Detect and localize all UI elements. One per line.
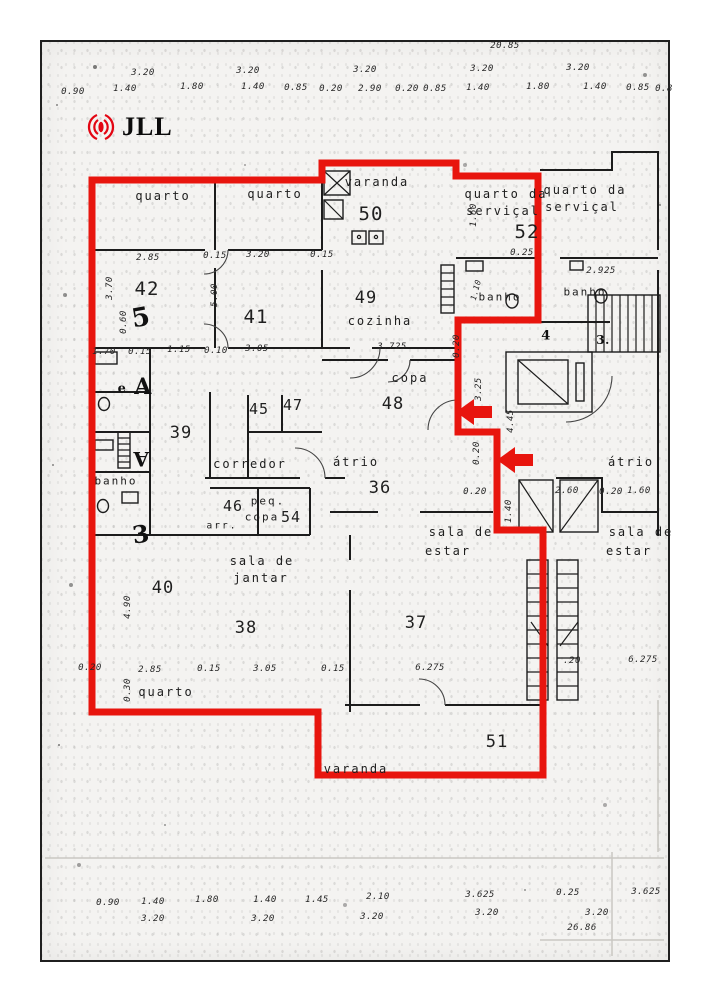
plan-label: 52 (515, 221, 540, 243)
plan-label: 0.90 (61, 87, 85, 97)
plan-label: 0.15 (310, 250, 334, 260)
plan-label: 36 (369, 478, 391, 498)
plan-label: 0.25 (556, 888, 580, 898)
plan-label: 0.90 (96, 898, 120, 908)
plan-label: 0.20 (78, 663, 102, 673)
plan-label: 5.00 (210, 283, 220, 307)
plan-label: 1.80 (526, 82, 550, 92)
plan-label: 37 (405, 613, 427, 633)
plan-label: 3.625 (465, 890, 495, 900)
plan-label: 0.20 (319, 84, 343, 94)
plan-label: 39 (170, 423, 192, 443)
plan-label: átrio (333, 455, 379, 469)
plan-label: 1.40 (504, 499, 514, 523)
plan-label: 0.15 (321, 664, 345, 674)
plan-label: 3.20 (475, 908, 499, 918)
plan-label: 5 (129, 302, 153, 335)
plan-label: 0.85 (423, 84, 447, 94)
plan-label: sala de (230, 554, 295, 568)
plan-label: 0.10 (204, 346, 228, 356)
plan-label: 6.275 (415, 663, 445, 673)
plan-label: 0.60 (119, 310, 129, 334)
plan-label: A (134, 374, 152, 400)
plan-label: banho (563, 286, 606, 299)
plan-label: 3.20 (131, 68, 155, 78)
plan-label: 3.20 (236, 66, 260, 76)
plan-label: 1.40 (241, 82, 265, 92)
plan-label: 0.15 (128, 347, 152, 357)
plan-label: 3.20 (360, 912, 384, 922)
plan-label: 0.20 (472, 441, 482, 465)
plan-label: 1.40 (253, 895, 277, 905)
plan-label: serviçal (545, 200, 619, 214)
plan-label: 3.20 (585, 908, 609, 918)
plan-label: 2.85 (136, 253, 160, 263)
plan-label: 3.20 (141, 914, 165, 924)
plan-label: 0.85 (284, 83, 308, 93)
plan-label: 3.625 (631, 887, 661, 897)
plan-label: 0.25 (510, 248, 534, 258)
plan-label: 40 (152, 578, 174, 598)
plan-label: 1.80 (180, 82, 204, 92)
plan-label: sala de (429, 525, 494, 539)
plan-label: varanda (345, 175, 410, 189)
plan-label: 48 (382, 394, 404, 414)
plan-label: 3.05 (245, 344, 269, 354)
plan-label: 4.90 (123, 595, 133, 619)
plan-label: 1.70 (92, 347, 116, 357)
plan-label: 3.725 (377, 342, 407, 352)
scanned-floorplan-page: JLL 20.853.203.203.203.203.200.901.401.8… (0, 0, 707, 1000)
plan-label: 49 (355, 288, 377, 308)
plan-label: 6.275 (628, 655, 658, 665)
plan-label: 1.45 (305, 895, 329, 905)
plan-label: 0.20 (452, 334, 462, 358)
plan-label: quarto (247, 187, 302, 201)
plan-label: arr. (207, 521, 238, 532)
plan-label: .20 (563, 656, 581, 666)
plan-label: 2.90 (358, 84, 382, 94)
plan-label: 42 (135, 278, 160, 300)
plan-label: estar (606, 544, 652, 558)
plan-label: quarto (135, 189, 190, 203)
plan-label: 3. (596, 333, 610, 347)
plan-label: 41 (244, 306, 269, 328)
plan-label: estar (425, 544, 471, 558)
plan-label: banho (94, 475, 137, 488)
plan-label: 3.05 (253, 664, 277, 674)
plan-label: 3 (130, 518, 151, 549)
plan-label: 2.10 (366, 892, 390, 902)
plan-label: 1.40 (466, 83, 490, 93)
plan-label: corredor (213, 457, 287, 471)
plan-label: 1.80 (195, 895, 219, 905)
plan-label: varanda (324, 762, 389, 776)
plan-label: 0.30 (123, 678, 133, 702)
plan-label: átrio (608, 455, 654, 469)
plan-label: quarto da (464, 187, 547, 201)
plan-label: 3.20 (251, 914, 275, 924)
plan-label: 4.45 (506, 409, 516, 433)
plan-label: peq. (251, 495, 286, 508)
plan-label: 3.20 (353, 65, 377, 75)
plan-label: 1.15 (167, 345, 191, 355)
plan-label: 0.20 (599, 487, 623, 497)
plan-label: cozinha (348, 314, 413, 328)
plan-label: copa (392, 371, 429, 385)
plan-label: 2.60 (555, 486, 579, 496)
plan-label: 45 (249, 400, 269, 418)
plan-label: 0.8 (655, 84, 673, 94)
plan-label: 38 (235, 618, 257, 638)
plan-label: 1.60 (627, 486, 651, 496)
plan-label: 0.85 (626, 83, 650, 93)
plan-label: 3.20 (566, 63, 590, 73)
plan-label: 2.925 (586, 266, 616, 276)
plan-label: A (133, 447, 149, 471)
plan-label: e (118, 382, 127, 397)
plan-label: 54 (281, 508, 301, 526)
plan-label: jantar (233, 571, 288, 585)
plan-label: quarto da (543, 183, 626, 197)
plan-label: 3.70 (105, 276, 115, 300)
plan-label: copa (245, 511, 280, 524)
plan-label: quarto (138, 685, 193, 699)
plan-label: 47 (283, 396, 303, 414)
plan-label: 1.60 (469, 203, 479, 227)
plan-label: 0.15 (197, 664, 221, 674)
plan-label: 26.86 (567, 923, 597, 933)
plan-labels-layer: 20.853.203.203.203.203.200.901.401.801.4… (0, 0, 707, 1000)
plan-label: 46 (223, 497, 243, 515)
plan-label: 20.85 (490, 41, 520, 51)
plan-label: 2.85 (138, 665, 162, 675)
plan-label: 0.20 (395, 84, 419, 94)
plan-label: 4 (541, 329, 551, 344)
plan-label: 0.20 (463, 487, 487, 497)
plan-label: 1.40 (141, 897, 165, 907)
plan-label: 0.15 (203, 251, 227, 261)
plan-label: sala de (609, 525, 674, 539)
plan-label: 50 (359, 203, 384, 225)
plan-label: 1.40 (113, 84, 137, 94)
plan-label: 3.20 (246, 250, 270, 260)
plan-label: 51 (486, 732, 508, 752)
plan-label: 3.20 (470, 64, 494, 74)
plan-label: 1.40 (583, 82, 607, 92)
plan-label: 3.25 (474, 377, 484, 401)
plan-label: banho (478, 291, 521, 304)
